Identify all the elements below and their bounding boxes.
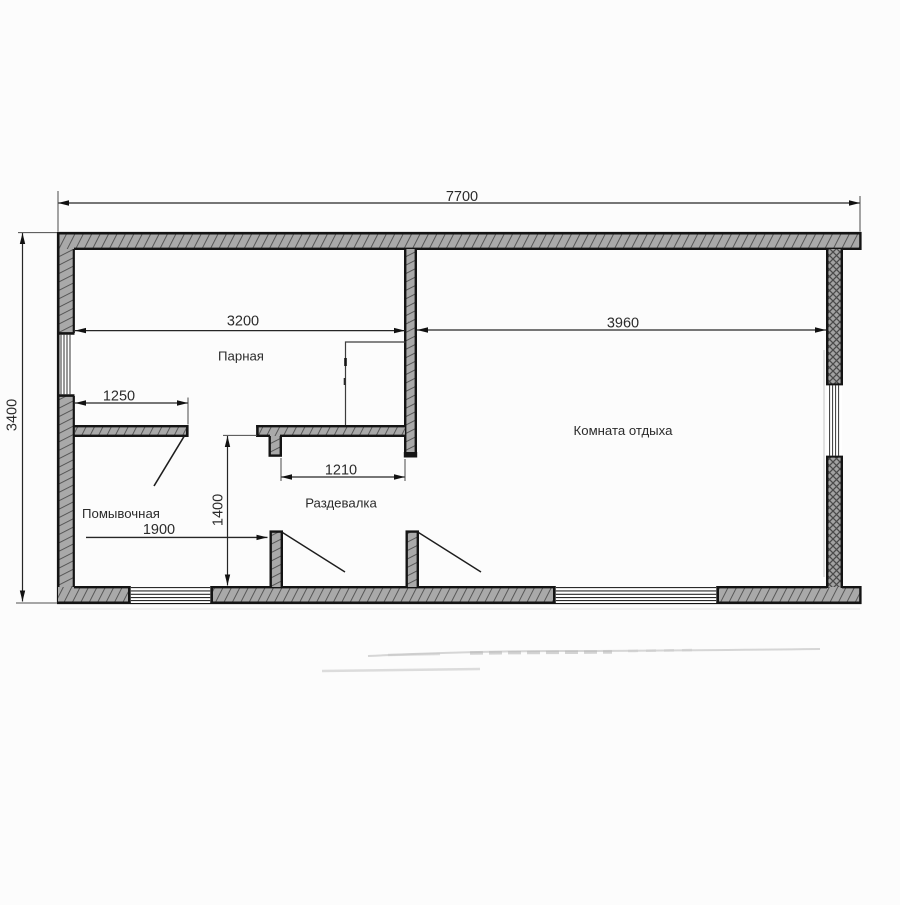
svg-text:1250: 1250	[103, 389, 135, 405]
svg-text:1400: 1400	[211, 494, 227, 526]
svg-text:Помывочная: Помывочная	[82, 506, 160, 521]
svg-text:1900: 1900	[143, 522, 175, 538]
svg-text:Парная: Парная	[218, 349, 264, 364]
svg-text:3400: 3400	[5, 399, 21, 431]
svg-text:1210: 1210	[325, 463, 357, 479]
svg-text:Комната отдыха: Комната отдыха	[574, 423, 674, 438]
svg-text:7700: 7700	[446, 189, 478, 205]
svg-text:Раздевалка: Раздевалка	[305, 496, 377, 511]
svg-text:3960: 3960	[607, 316, 639, 332]
svg-text:3200: 3200	[227, 314, 259, 330]
